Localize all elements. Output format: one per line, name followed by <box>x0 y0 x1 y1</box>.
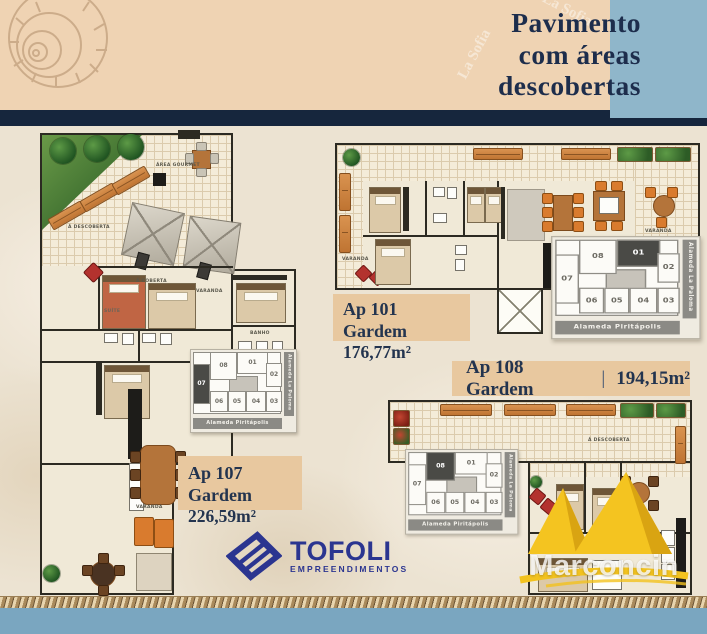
wardrobe <box>233 275 287 280</box>
title-line-1: Pavimento <box>498 7 641 39</box>
bench <box>675 426 686 464</box>
wardrobe <box>403 187 409 231</box>
label-plate-ap101: Ap 101 Gardem 176,77m² <box>333 294 470 341</box>
plant <box>530 476 542 488</box>
keyplan-unit-07-highlighted: 07 <box>193 364 210 404</box>
appliance <box>661 547 675 563</box>
wall-segment <box>363 235 498 237</box>
site-keyplan-ap107: Alameda Piritápolis Alameda La Paloma 01… <box>190 349 297 433</box>
chair <box>620 476 631 487</box>
chair <box>130 469 141 481</box>
bed <box>375 239 411 285</box>
lounge-chair <box>134 517 154 546</box>
stairwell <box>497 288 543 334</box>
keyplan-unit-03: 03 <box>266 391 282 412</box>
room-label-varanda: VARANDA <box>196 289 223 295</box>
wall-segment <box>138 331 140 361</box>
tofoli-logo: TOFOLI EMPREENDIMENTOS <box>226 527 441 585</box>
plan-area-ap101: 176,77m² <box>343 342 460 363</box>
planter <box>656 403 686 418</box>
keyplan-unit-06: 06 <box>210 391 228 412</box>
tofoli-logo-icon <box>222 531 285 581</box>
bed <box>369 187 401 233</box>
bath-fixture <box>122 333 134 345</box>
bench <box>339 215 351 253</box>
bath-fixture <box>160 333 172 345</box>
wall-segment <box>178 130 200 139</box>
bench <box>504 404 556 416</box>
tree <box>118 134 144 160</box>
separator: | <box>601 368 605 390</box>
bath-fixture <box>447 187 457 199</box>
chair <box>656 217 667 228</box>
chair <box>196 142 207 151</box>
room-label-coberta: Á COBERTA <box>136 279 167 285</box>
planter <box>655 147 691 162</box>
keyplan-unit-05: 05 <box>228 391 246 412</box>
planter <box>617 147 653 162</box>
chair <box>645 187 656 198</box>
chair <box>542 221 553 232</box>
site-keyplan-ap101: Alameda Piritápolis Alameda La Paloma 01… <box>551 236 701 339</box>
chair <box>210 153 219 164</box>
keyplan-street-bottom: Alameda Piritápolis <box>193 418 282 429</box>
chair <box>573 221 584 232</box>
keyplan-unit-08: 08 <box>579 240 617 274</box>
keyplan-unit-04: 04 <box>246 391 266 412</box>
keyplan-unit-05: 05 <box>445 492 464 513</box>
bed <box>556 484 584 530</box>
appliance <box>661 530 675 546</box>
chair <box>114 565 125 576</box>
bath-fixture <box>104 333 118 343</box>
tofoli-logo-text: TOFOLI EMPREENDIMENTOS <box>290 538 408 574</box>
label-plate-ap108: Ap 108 Gardem | 194,15m² <box>452 361 690 396</box>
keyplan-unit-01: 01 <box>455 452 488 474</box>
bath-fixture <box>641 540 651 552</box>
keyplan-unit-03: 03 <box>657 288 679 314</box>
keyplan-unit-02: 02 <box>486 463 503 487</box>
tv-wall <box>501 187 505 239</box>
bed <box>104 365 150 419</box>
room-label-varanda: VARANDA <box>645 229 672 235</box>
bench <box>473 148 523 160</box>
keyplan-unit-08: 08 <box>210 352 237 380</box>
chair <box>595 221 607 231</box>
footer-blue-band <box>0 608 707 634</box>
chair <box>620 500 631 511</box>
closet <box>592 560 622 590</box>
room-label-gourmet: ÁREA GOURMET <box>156 163 200 169</box>
bath-fixture <box>433 187 445 197</box>
wall-segment <box>233 325 296 327</box>
sofa <box>136 553 172 591</box>
room-label-descoberta: Á DESCOBERTA <box>588 438 630 444</box>
bed <box>592 488 618 530</box>
room-label-suite: SUÍTE <box>104 309 120 315</box>
chair <box>196 168 207 177</box>
keyplan-street-right: Alameda La Paloma <box>505 452 516 517</box>
keyplan-unit-02: 02 <box>266 363 282 387</box>
plant <box>343 149 360 166</box>
grill <box>153 173 166 186</box>
label-plate-ap107: Ap 107 Gardem 226,59m² <box>178 456 302 510</box>
chair <box>595 181 607 191</box>
room-label-banho: BANHO <box>250 331 270 337</box>
wall-segment <box>425 181 427 237</box>
chair <box>542 207 553 218</box>
keyplan-unit-01: 01 <box>237 352 268 374</box>
plant <box>43 565 60 582</box>
keyplan-street-bottom: Alameda Piritápolis <box>555 321 680 335</box>
wall-segment <box>620 463 622 533</box>
chair <box>573 207 584 218</box>
keyplan-unit-08-highlighted: 08 <box>426 452 455 481</box>
bath-fixture <box>455 245 467 255</box>
parasol <box>121 202 185 266</box>
bench <box>566 404 616 416</box>
tree <box>84 136 110 162</box>
dining-table <box>553 195 573 231</box>
bed <box>236 283 286 323</box>
wall-segment <box>463 181 465 237</box>
chair <box>648 476 659 487</box>
flower-planter <box>393 410 410 427</box>
lounge-chair <box>154 519 174 548</box>
plan-name-ap107: Ap 107 Gardem <box>188 462 292 506</box>
bench <box>339 173 351 211</box>
keyplan-street-right: Alameda La Paloma <box>284 352 294 416</box>
chair <box>667 187 678 198</box>
tray <box>599 197 619 214</box>
keyplan-unit-07: 07 <box>408 464 426 505</box>
plan-area-ap108: 194,15m² <box>616 368 690 390</box>
chair <box>542 193 553 204</box>
bath-fixture <box>433 213 447 223</box>
chair <box>611 181 623 191</box>
tree <box>50 138 76 164</box>
kitchen-counter <box>676 518 686 588</box>
plan-area-ap107: 226,59m² <box>188 506 292 527</box>
keyplan-street-right: Alameda La Paloma <box>683 240 697 319</box>
appliance <box>661 564 675 580</box>
bed <box>467 187 485 223</box>
bath-fixture <box>455 259 465 271</box>
keyplan-unit-05: 05 <box>604 288 629 314</box>
flower-planter <box>393 428 410 445</box>
keyplan-unit-03: 03 <box>486 492 503 513</box>
keyplan-unit-02: 02 <box>657 253 679 283</box>
round-table <box>90 561 116 587</box>
ap108-terrace-inner <box>530 463 690 477</box>
chair <box>98 585 109 596</box>
room-label-varanda: VARANDA <box>136 505 163 511</box>
bench <box>440 404 492 416</box>
dining-table <box>140 445 176 505</box>
plan-name-ap108: Ap 108 Gardem <box>466 357 590 401</box>
chair <box>648 500 659 511</box>
round-table <box>628 482 650 504</box>
chair <box>130 487 141 499</box>
bed <box>538 558 588 592</box>
room-label-varanda: VARANDA <box>342 257 369 263</box>
keyplan-unit-01-highlighted: 01 <box>617 240 660 267</box>
planter <box>620 403 654 418</box>
shell-illustration <box>0 0 129 108</box>
keyplan-unit-06: 06 <box>426 492 445 513</box>
tofoli-name: TOFOLI <box>290 538 408 564</box>
header-navy-band <box>0 110 707 126</box>
chair <box>573 193 584 204</box>
room-label-descoberta: Á DESCOBERTA <box>68 225 110 231</box>
chair <box>82 565 93 576</box>
wall-segment <box>98 266 233 268</box>
keyplan-unit-04: 04 <box>464 492 485 513</box>
chair <box>130 451 141 463</box>
page-title: Pavimento com áreas descobertas <box>498 7 641 102</box>
chair <box>98 553 109 564</box>
site-keyplan-ap108: Alameda Piritápolis Alameda La Paloma 01… <box>405 449 518 535</box>
round-table <box>653 195 675 217</box>
wardrobe <box>96 363 102 415</box>
brochure-page: La Sofia La Sofia Pavimento com áreas de… <box>0 0 707 634</box>
tofoli-subtitle: EMPREENDIMENTOS <box>290 564 408 574</box>
plan-name-ap101: Ap 101 Gardem <box>343 298 460 342</box>
living-rug <box>507 189 545 241</box>
keyplan-unit-07: 07 <box>555 254 579 303</box>
keyplan-unit-04: 04 <box>629 288 657 314</box>
keyplan-unit-06: 06 <box>579 288 604 314</box>
chair <box>611 221 623 231</box>
bed <box>148 283 196 329</box>
bath-fixture <box>628 540 639 551</box>
wall-segment <box>584 463 586 533</box>
bath-fixture <box>142 333 156 343</box>
title-line-3: descobertas <box>498 70 641 102</box>
title-line-2: com áreas <box>498 39 641 71</box>
bench <box>561 148 611 160</box>
